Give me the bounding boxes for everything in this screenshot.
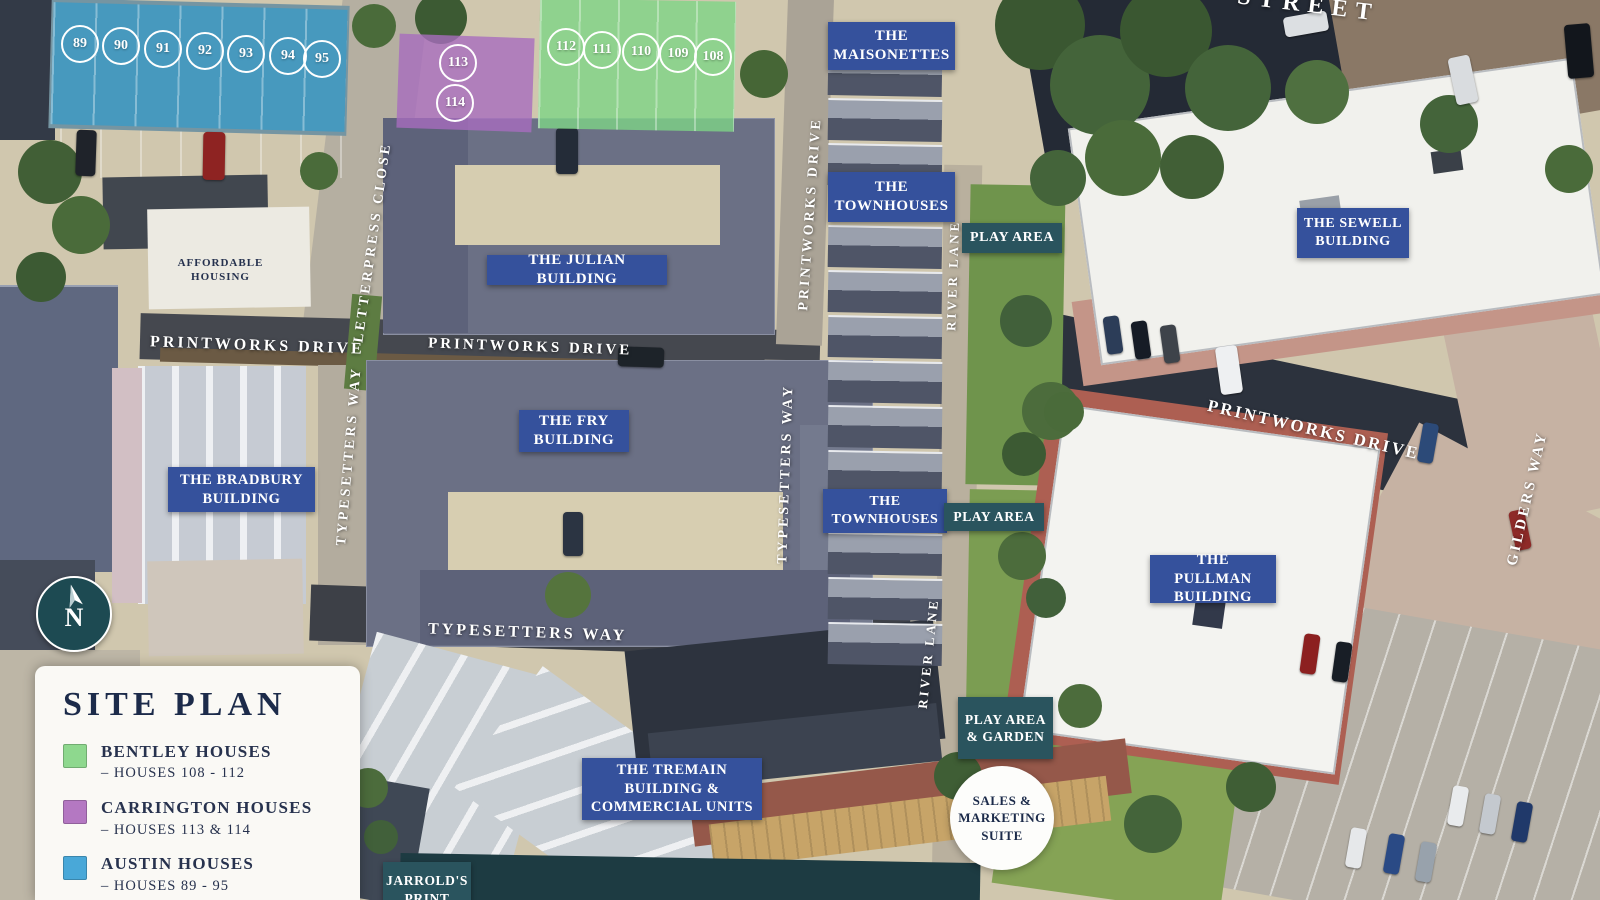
car xyxy=(75,130,97,177)
townhouse-roof xyxy=(828,270,943,314)
tree-canopy xyxy=(1185,45,1271,131)
tree-canopy xyxy=(1226,762,1276,812)
tree-canopy xyxy=(52,196,110,254)
affordable-housing-label: AFFORDABLE HOUSING xyxy=(168,256,273,285)
sales-marketing-suite-label: SALES & MARKETING SUITE xyxy=(950,766,1054,870)
plot-number: 94 xyxy=(269,37,307,75)
legend-range: – HOUSES 113 & 114 xyxy=(101,821,312,840)
bradbury-building-banner: THE BRADBURY BUILDING xyxy=(168,467,315,512)
fry-building-banner: THE FRY BUILDING xyxy=(519,410,629,452)
tree-canopy xyxy=(998,532,1046,580)
plot-number: 111 xyxy=(583,31,621,69)
townhouse-roof xyxy=(828,532,943,576)
tree-canopy xyxy=(1285,60,1349,124)
car xyxy=(1564,23,1595,79)
river-water xyxy=(400,853,981,900)
legend-name: BENTLEY HOUSES xyxy=(101,742,272,762)
tree-canopy xyxy=(545,572,591,618)
play-area-south-banner: PLAY AREA xyxy=(944,503,1044,531)
townhouse-roof xyxy=(828,405,943,449)
tree-canopy xyxy=(740,50,788,98)
site-plan-map: 89 90 91 92 93 94 95 113 114 112 111 110… xyxy=(0,0,1600,900)
tree-canopy xyxy=(1030,150,1086,206)
tree-canopy xyxy=(300,152,338,190)
tremain-building-banner: THE TREMAIN BUILDING & COMMERCIAL UNITS xyxy=(582,758,762,820)
townhouses-north-banner: THE TOWNHOUSES xyxy=(828,172,955,222)
tree-canopy xyxy=(18,140,82,204)
plot-number: 90 xyxy=(102,27,140,65)
tree-canopy xyxy=(1160,135,1224,199)
play-area-garden-banner: PLAY AREA & GARDEN xyxy=(958,697,1053,759)
tree-canopy xyxy=(352,4,396,48)
plot-number: 110 xyxy=(622,33,660,71)
tree-canopy xyxy=(1058,684,1102,728)
townhouses-south-banner: THE TOWNHOUSES xyxy=(823,489,947,533)
austin-swatch xyxy=(63,856,87,880)
pullman-building-banner: THE PULLMAN BUILDING xyxy=(1150,555,1276,603)
tree-canopy xyxy=(1002,432,1046,476)
maisonettes-banner: THE MAISONETTES xyxy=(828,22,955,70)
plot-number: 112 xyxy=(547,28,585,66)
sewell-building-banner: THE SEWELL BUILDING xyxy=(1297,208,1409,258)
tree-canopy xyxy=(16,252,66,302)
plot-number: 95 xyxy=(303,40,341,78)
legend-item-carrington: CARRINGTON HOUSES – HOUSES 113 & 114 xyxy=(63,798,360,839)
legend-item-austin: AUSTIN HOUSES – HOUSES 89 - 95 xyxy=(63,854,360,895)
plot-number: 91 xyxy=(144,30,182,68)
tree-canopy xyxy=(1085,120,1161,196)
fry-courtyard xyxy=(448,492,783,570)
plot-number: 108 xyxy=(694,38,732,76)
townhouse-roof xyxy=(828,360,943,404)
plot-number: 89 xyxy=(61,25,99,63)
julian-courtyard xyxy=(455,165,720,245)
tree-canopy xyxy=(1420,95,1478,153)
north-compass: N xyxy=(36,576,112,652)
jarrolds-print-banner: JARROLD'S PRINT xyxy=(383,862,471,900)
legend-name: AUSTIN HOUSES xyxy=(101,854,254,874)
plot-number: 92 xyxy=(186,32,224,70)
legend-range: – HOUSES 89 - 95 xyxy=(101,877,254,896)
tree-canopy xyxy=(1026,578,1066,618)
carrington-swatch xyxy=(63,800,87,824)
plot-number: 109 xyxy=(659,35,697,73)
townhouse-roof xyxy=(828,450,943,494)
julian-building-banner: THE JULIAN BUILDING xyxy=(487,255,667,285)
legend-name: CARRINGTON HOUSES xyxy=(101,798,312,818)
bradbury-terrace xyxy=(112,368,142,603)
bradbury-south-wing xyxy=(147,559,304,657)
legend-title: SITE PLAN xyxy=(63,686,360,724)
plot-number: 114 xyxy=(436,84,474,122)
townhouse-roof xyxy=(828,225,943,269)
plot-number: 113 xyxy=(439,44,477,82)
tree-canopy xyxy=(1044,392,1084,432)
legend-item-bentley: BENTLEY HOUSES – HOUSES 108 - 112 xyxy=(63,742,360,783)
car xyxy=(203,132,226,180)
townhouse-roof xyxy=(828,315,943,359)
legend-range: – HOUSES 108 - 112 xyxy=(101,764,272,783)
maisonette-roof xyxy=(828,98,943,142)
car xyxy=(556,128,578,174)
building-roof xyxy=(0,285,118,572)
play-area-north-banner: PLAY AREA xyxy=(962,223,1062,253)
site-plan-legend: SITE PLAN BENTLEY HOUSES – HOUSES 108 - … xyxy=(35,666,360,900)
car xyxy=(563,512,583,556)
tree-canopy xyxy=(1124,795,1182,853)
tree-canopy xyxy=(1000,295,1052,347)
building-roof xyxy=(0,0,55,140)
tree-canopy xyxy=(1545,145,1593,193)
tree-canopy xyxy=(364,820,398,854)
plot-number: 93 xyxy=(227,35,265,73)
bentley-swatch xyxy=(63,744,87,768)
